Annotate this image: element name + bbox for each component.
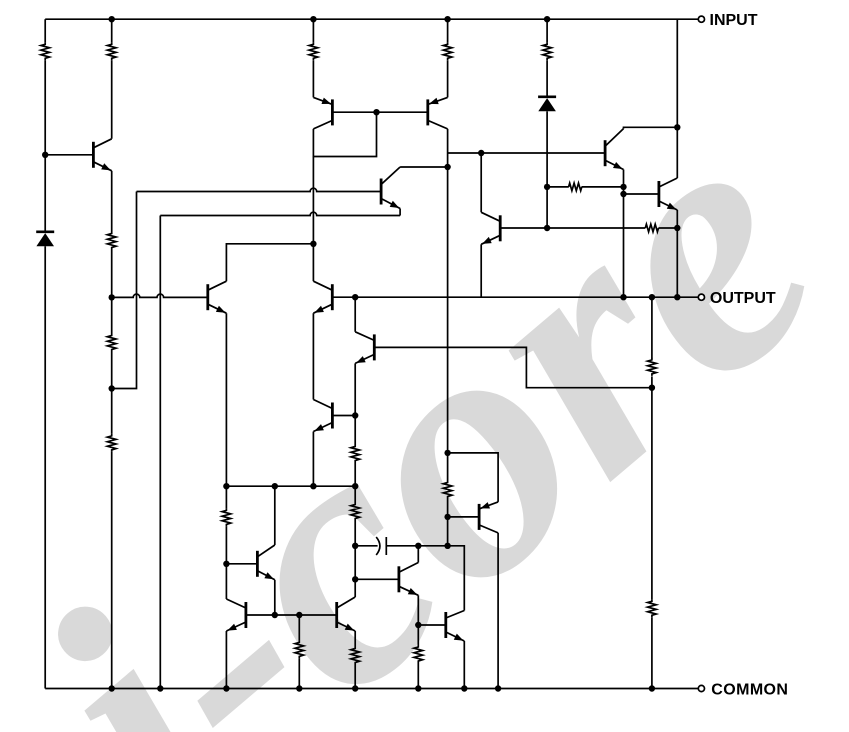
- svg-text:OUTPUT: OUTPUT: [710, 290, 776, 307]
- svg-text:COMMON: COMMON: [711, 682, 788, 699]
- svg-text:INPUT: INPUT: [710, 12, 758, 29]
